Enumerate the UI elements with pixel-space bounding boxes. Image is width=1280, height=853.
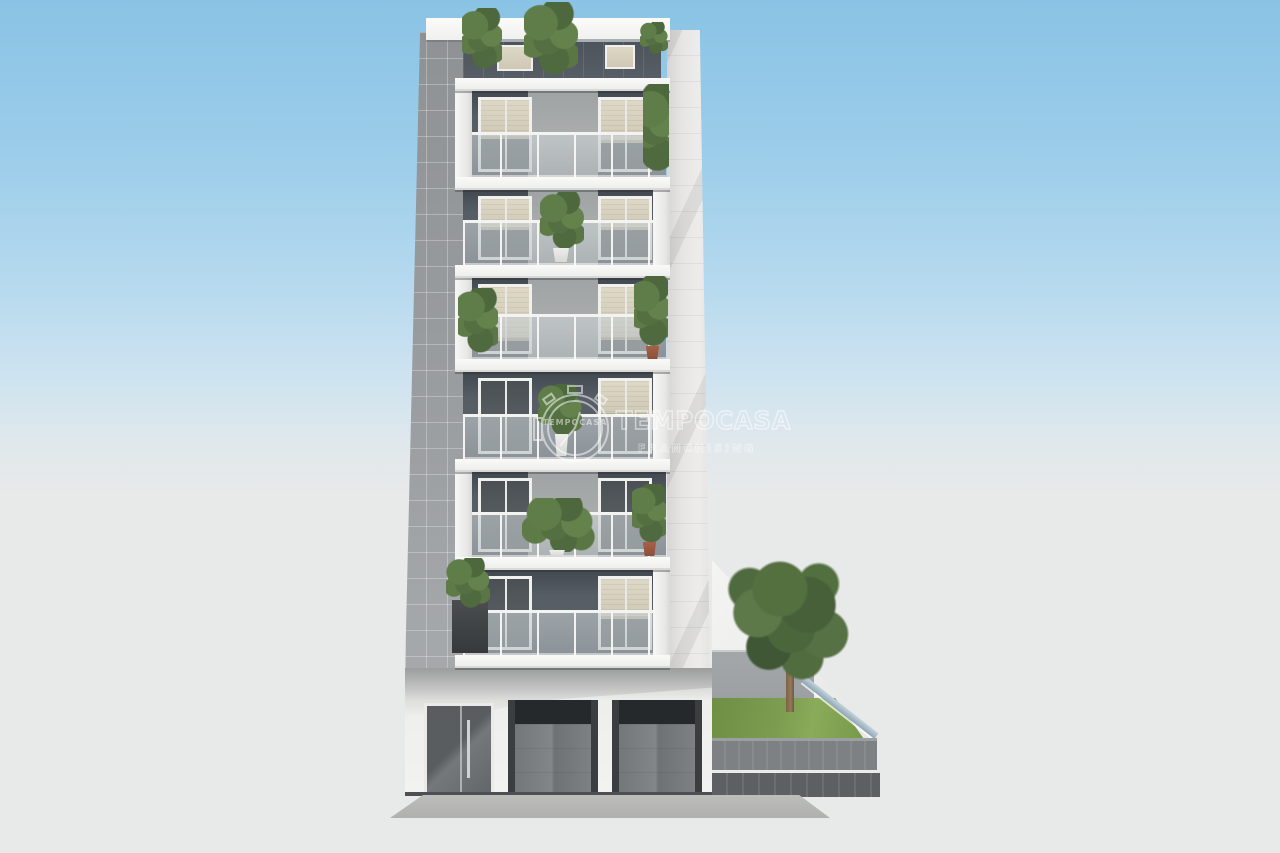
white-frame-post [653, 359, 670, 472]
glass-balustrade [463, 610, 666, 655]
garden-plinth-tiles [712, 773, 880, 797]
garage-door-left [508, 700, 598, 795]
balcony-plant [458, 288, 498, 354]
balcony-floor-6 [455, 91, 670, 190]
balcony-plant [632, 484, 666, 544]
balcony-slab [455, 78, 670, 91]
roof-plant [640, 22, 668, 54]
white-frame-post [653, 557, 670, 668]
balcony-slab [455, 655, 670, 668]
balcony-slab [455, 359, 670, 372]
entrance-door [424, 703, 494, 797]
roof-plant [524, 2, 578, 76]
door-mullion [460, 706, 462, 794]
architectural-render-scene: TEMPOCASA TEMPOCASA FRANCHISING [0, 0, 1280, 853]
balcony-plant [643, 84, 669, 174]
balcony-plant [446, 558, 490, 608]
glass-balustrade [463, 132, 666, 177]
tree-canopy [722, 560, 860, 692]
garage-door-right [612, 700, 702, 795]
white-frame-post [455, 459, 472, 570]
balcony-plant [634, 276, 668, 348]
roller-shutter [605, 45, 635, 69]
balcony-slab [455, 177, 670, 190]
balcony-plant [538, 384, 582, 436]
door-handle [467, 720, 470, 778]
balcony-slab [455, 459, 670, 472]
balcony-plant [522, 498, 596, 552]
sidewalk [390, 795, 830, 818]
white-frame-post [455, 78, 472, 190]
balcony-plant [540, 192, 584, 250]
white-frame-post [653, 177, 670, 278]
roof-plant [462, 8, 502, 70]
